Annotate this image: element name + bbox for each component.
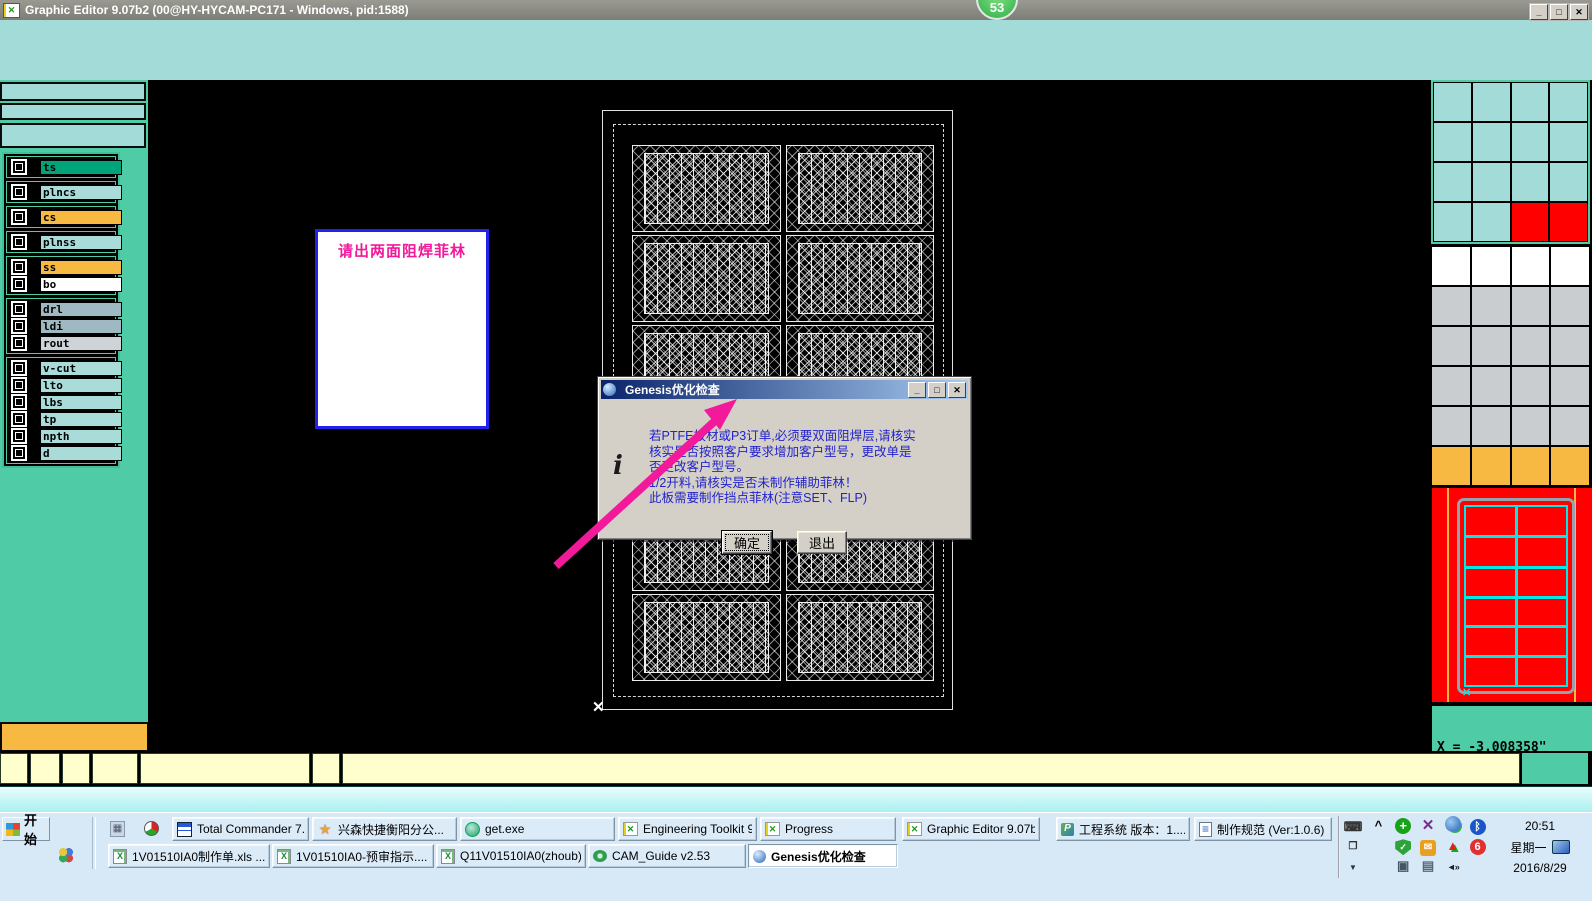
tray-side-controls (1340, 816, 1366, 878)
note-text: 请出两面阻焊菲林 (338, 243, 466, 260)
panel-preview: ✕ (1432, 488, 1592, 702)
mailc-icon[interactable] (1420, 840, 1436, 856)
layer-label[interactable]: ts (40, 160, 122, 175)
grid-cell[interactable] (1512, 123, 1549, 161)
grid-cell[interactable] (1472, 327, 1510, 365)
status-segment (342, 753, 1520, 784)
layer-label[interactable]: plnss (40, 235, 122, 250)
grid-cell[interactable] (1473, 163, 1510, 201)
layer-row-lto[interactable]: lto (8, 377, 114, 393)
status-segment (0, 753, 28, 784)
grid-cell[interactable] (1432, 247, 1470, 285)
layer-row-plnss[interactable]: plnss (8, 234, 114, 250)
note-box: 请出两面阻焊菲林 (315, 229, 489, 429)
layer-row-plncs[interactable]: plncs (8, 184, 114, 200)
six-icon[interactable] (1470, 839, 1486, 855)
taskbar-button-label: 制作规范 (Ver:1.0.6) (1217, 821, 1324, 838)
taskbar-button[interactable]: get.exe (460, 817, 615, 841)
clock-day: 星期一 (1510, 839, 1546, 856)
grid-cell[interactable] (1551, 287, 1589, 325)
title-bar: ✕ Graphic Editor 9.07b2 (00@HY-HYCAM-PC1… (0, 0, 1592, 20)
panel-block (786, 594, 935, 681)
dialog-title-bar[interactable]: Genesis优化检查 _ □ ✕ (601, 380, 968, 399)
grid-cell[interactable] (1512, 447, 1550, 485)
layer-group: cs (6, 206, 116, 228)
panel-block (786, 145, 935, 232)
dialog-body: i 若PTFE板材或P3订单,必须要双面阻焊层,请核实核实是否按照客户要求增加客… (601, 399, 968, 536)
genesis-check-dialog: Genesis优化检查 _ □ ✕ i 若PTFE板材或P3订单,必须要双面阻焊… (597, 376, 972, 540)
grid-cell[interactable] (1551, 447, 1589, 485)
grid-cell[interactable] (1434, 203, 1471, 241)
monitor-icon[interactable] (1552, 840, 1570, 854)
grid-cell[interactable] (1512, 327, 1550, 365)
layer-row-rout[interactable]: rout (8, 335, 114, 351)
dialog-maximize-button[interactable]: □ (928, 382, 946, 398)
dialog-message-line: 若PTFE板材或P3订单,必须要双面阻焊层,请核实 (649, 429, 964, 445)
tray-icons (1366, 816, 1490, 878)
taskbar-button-label: Genesis优化检查 (771, 848, 866, 865)
xpurple-icon[interactable] (1420, 818, 1436, 834)
taskbar-button-label: CAM_Guide v2.53 (612, 849, 710, 863)
layer-label[interactable]: bo (40, 277, 122, 292)
layer-row-tp[interactable]: tp (8, 411, 114, 427)
grid-cell[interactable] (1434, 123, 1471, 161)
start-label: 开始 (24, 810, 46, 848)
taskbar-button[interactable]: 工程系统 版本：1.... (1056, 817, 1190, 841)
panel-block (632, 235, 781, 322)
grid-cell[interactable] (1512, 83, 1549, 121)
taskbar-button[interactable]: 制作规范 (Ver:1.0.6) (1194, 817, 1332, 841)
layer-color-grid-top (1431, 80, 1590, 244)
color-app-icon[interactable] (144, 821, 159, 836)
layer-checkbox[interactable] (11, 394, 27, 410)
info-icon: i (613, 451, 623, 481)
grid-cell[interactable] (1512, 287, 1550, 325)
status-segment (62, 753, 90, 784)
layer-label[interactable]: cs (40, 210, 122, 225)
layer-checkbox[interactable] (11, 318, 27, 334)
layer-group: drlldirout (6, 298, 116, 354)
grid-cell[interactable] (1512, 247, 1550, 285)
tray-clock: 20:51 星期一 2016/8/29 (1490, 816, 1590, 878)
dialog-minimize-button[interactable]: _ (908, 382, 926, 398)
grid-cell[interactable] (1512, 163, 1549, 201)
grid-cell[interactable] (1473, 203, 1510, 241)
grid-cell[interactable] (1551, 367, 1589, 405)
gx-icon (765, 822, 780, 836)
layer-row-ss[interactable]: ss (8, 259, 114, 275)
preview-guide-line (1447, 488, 1449, 702)
status-segment (140, 753, 310, 784)
calculator-icon[interactable] (110, 821, 125, 837)
grid-cell[interactable] (1512, 407, 1550, 445)
taskbar-button-label: Engineering Toolkit 9.... (643, 822, 752, 836)
quicklaunch-divider (92, 817, 96, 869)
layer-checkbox[interactable] (11, 360, 27, 376)
excel-icon (113, 849, 127, 864)
taskbar-button[interactable]: 兴森快捷衡阳分公... (312, 817, 457, 841)
taskbar-button[interactable]: Progress (760, 817, 896, 841)
layer-label[interactable]: tp (40, 412, 122, 427)
balls-icon[interactable] (58, 847, 74, 863)
layer-group: v-cutltolbstpnpthd (6, 357, 116, 464)
layer-label[interactable]: rout (40, 336, 122, 351)
grid-cell[interactable] (1472, 407, 1510, 445)
taskbar-button[interactable]: 1V01510IA0制作单.xls ... (108, 844, 270, 868)
redarrow-icon[interactable] (1445, 838, 1461, 854)
speaker-icon[interactable] (1445, 859, 1461, 875)
ok-button[interactable]: 确定 (722, 531, 772, 554)
layer-checkbox[interactable] (11, 428, 27, 444)
taskbar-button-label: Graphic Editor 9.07b2... (927, 822, 1035, 836)
layer-group: plnss (6, 231, 116, 253)
layer-row-drl[interactable]: drl (8, 301, 114, 317)
top-band (0, 20, 1592, 80)
clock-date: 2016/8/29 (1494, 861, 1586, 875)
globe2-icon (753, 850, 766, 863)
preview-origin-icon: ✕ (1462, 686, 1471, 699)
grid-cell[interactable] (1472, 287, 1510, 325)
clipboard-icon[interactable] (1420, 858, 1436, 874)
grid-cell[interactable] (1550, 83, 1587, 121)
layer-group: plncs (6, 181, 116, 203)
clock-time: 20:51 (1494, 819, 1586, 833)
bottom-strip (0, 786, 1592, 813)
grid-cell[interactable] (1432, 447, 1470, 485)
chevron-icon[interactable] (1370, 818, 1386, 834)
shield-icon[interactable] (1395, 839, 1411, 855)
layer-row-d[interactable]: d (8, 445, 114, 461)
layer-row-cs[interactable]: cs (8, 209, 114, 225)
floppy-icon (177, 822, 192, 837)
grid-cell[interactable] (1551, 327, 1589, 365)
status-segment (92, 753, 138, 784)
grid-cell[interactable] (1512, 203, 1549, 241)
exit-button[interactable]: 退出 (797, 531, 847, 554)
taskbar-button-label: Total Commander 7.0 ... (197, 822, 304, 836)
restore-icon[interactable] (1345, 839, 1361, 855)
layer-row-bo[interactable]: bo (8, 276, 114, 292)
coordinate-readout: X = -3.008358" Y = 13.812537" (1432, 706, 1592, 751)
layer-checkbox[interactable] (11, 159, 27, 175)
layer-checkbox[interactable] (11, 276, 27, 292)
layer-label[interactable]: ss (40, 260, 122, 275)
layer-checkbox[interactable] (11, 411, 27, 427)
layer-group: ssbo (6, 256, 116, 295)
layer-label[interactable]: lbs (40, 395, 122, 410)
doc-icon (1199, 822, 1212, 837)
layer-row-lbs[interactable]: lbs (8, 394, 114, 410)
minimize-button[interactable]: _ (1530, 4, 1548, 20)
panel-block (632, 594, 781, 681)
taskbar: 开始 Total Commander 7.0 ...兴森快捷衡阳分公...get… (0, 812, 1592, 901)
dialog-message-line: 否更改客户型号。 (649, 460, 964, 476)
layer-group: ts (6, 156, 116, 178)
layer-checkbox[interactable] (11, 377, 27, 393)
taskbar-button-label: 工程系统 版本：1.... (1079, 821, 1185, 838)
layer-list: tsplncscsplnssssbodrlldiroutv-cutltolbst… (2, 152, 120, 468)
globe-icon (603, 383, 616, 396)
grid-cell[interactable] (1432, 367, 1470, 405)
cam-icon (593, 850, 607, 862)
status-segment (30, 753, 60, 784)
layer-label[interactable]: npth (40, 429, 122, 444)
grid-cell[interactable] (1551, 407, 1589, 445)
status-bar (0, 751, 1592, 786)
p-icon (1061, 823, 1074, 836)
grid-cell[interactable] (1472, 367, 1510, 405)
grid-cell[interactable] (1550, 163, 1587, 201)
layer-label[interactable]: v-cut (40, 361, 122, 376)
layer-row-npth[interactable]: npth (8, 428, 114, 444)
layer-row-ldi[interactable]: ldi (8, 318, 114, 334)
taskbar-button[interactable]: Total Commander 7.0 ... (172, 817, 309, 841)
preview-board-outline: ✕ (1457, 498, 1575, 694)
layer-row-v-cut[interactable]: v-cut (8, 360, 114, 376)
taskbar-button[interactable]: Graphic Editor 9.07b2... (902, 817, 1040, 841)
taskbar-button-label: 1V01510IA0制作单.xls ... (132, 848, 265, 865)
close-button[interactable]: ✕ (1570, 4, 1588, 20)
layer-checkbox[interactable] (11, 184, 27, 200)
left-panel: tsplncscsplnssssbodrlldiroutv-cutltolbst… (0, 80, 148, 751)
left-toolbar-slot (0, 82, 146, 101)
window-title: Graphic Editor 9.07b2 (00@HY-HYCAM-PC171… (25, 3, 409, 17)
window-controls: _ □ ✕ (1529, 3, 1589, 21)
grid-cell[interactable] (1473, 83, 1510, 121)
grid-cell[interactable] (1472, 447, 1510, 485)
grid-cell[interactable] (1434, 163, 1471, 201)
grid-cell[interactable] (1551, 247, 1589, 285)
left-toolbar-slot (0, 123, 146, 148)
left-orange-bar (0, 722, 149, 752)
layer-row-ts[interactable]: ts (8, 159, 114, 175)
dialog-window-controls: _ □ ✕ (908, 382, 966, 398)
system-tray: 20:51 星期一 2016/8/29 (1338, 816, 1590, 878)
layer-label[interactable]: plncs (40, 185, 122, 200)
layer-label[interactable]: drl (40, 302, 122, 317)
dialog-message: 若PTFE板材或P3订单,必须要双面阻焊层,请核实核实是否按照客户要求增加客户型… (649, 429, 964, 507)
taskbar-button-label: 兴森快捷衡阳分公... (338, 821, 444, 838)
left-toolbar-slot (0, 103, 146, 120)
taskbar-button-label: get.exe (485, 822, 524, 836)
grid-cell[interactable] (1550, 203, 1587, 241)
layer-checkbox[interactable] (11, 259, 27, 275)
screen: { "window": { "title": "Graphic Editor 9… (0, 0, 1592, 900)
right-panel: ✕ X = -3.008358" Y = 13.812537" (1412, 80, 1592, 751)
excel-icon (441, 849, 455, 864)
taskbar-button-label: Progress (785, 822, 833, 836)
grid-cell[interactable] (1473, 123, 1510, 161)
status-segment (312, 753, 340, 784)
taskbar-button[interactable]: 1V01510IA0-预审指示.... (272, 844, 434, 868)
taskbar-button[interactable]: Engineering Toolkit 9.... (618, 817, 757, 841)
origin-marker-icon: ✕ (592, 698, 603, 716)
layer-label[interactable]: lto (40, 378, 122, 393)
netplug-icon[interactable] (1395, 858, 1411, 874)
grid-cell[interactable] (1432, 287, 1470, 325)
taskbar-button-label: 1V01510IA0-预审指示.... (296, 848, 427, 865)
gx-icon (907, 822, 922, 836)
preview-grid (1464, 505, 1568, 687)
grid-cell[interactable] (1472, 247, 1510, 285)
blueglobe-icon[interactable] (1445, 816, 1461, 832)
status-segment (1522, 753, 1588, 784)
layer-color-grid-bottom (1431, 246, 1590, 486)
taskbar-button[interactable]: Genesis优化检查 (748, 844, 898, 868)
panel-block (786, 235, 935, 322)
layer-checkbox[interactable] (11, 301, 27, 317)
bluetooth-icon[interactable] (1470, 819, 1486, 835)
start-button[interactable]: 开始 (2, 817, 50, 841)
maximize-button[interactable]: □ (1550, 4, 1568, 20)
chevron-down-icon[interactable] (1345, 860, 1361, 876)
app-icon: ✕ (3, 3, 20, 18)
keyboard-icon[interactable] (1345, 818, 1361, 834)
dialog-close-button[interactable]: ✕ (948, 382, 966, 398)
avplus-icon[interactable] (1395, 818, 1411, 834)
globe-icon (465, 822, 480, 837)
dialog-title: Genesis优化检查 (625, 381, 720, 398)
taskbar-button[interactable]: Q11V01510IA0(zhoub).x... (436, 844, 586, 868)
taskbar-button-label: Q11V01510IA0(zhoub).x... (460, 849, 581, 863)
windows-flag-icon (6, 823, 20, 836)
grid-cell[interactable] (1432, 407, 1470, 445)
gx-icon (623, 822, 638, 836)
layer-checkbox[interactable] (11, 335, 27, 351)
layer-checkbox[interactable] (11, 209, 27, 225)
star-icon (317, 822, 333, 836)
panel-block (632, 145, 781, 232)
grid-cell[interactable] (1512, 367, 1550, 405)
grid-cell[interactable] (1432, 327, 1470, 365)
layer-label[interactable]: ldi (40, 319, 122, 334)
layer-checkbox[interactable] (11, 234, 27, 250)
grid-cell[interactable] (1434, 83, 1471, 121)
dialog-message-line: 此板需要制作挡点菲林(注意SET、FLP) (649, 491, 964, 507)
dialog-message-line: 1/2开料,请核实是否未制作辅助菲林！ (649, 476, 964, 492)
layer-label[interactable]: d (40, 446, 122, 461)
dialog-message-line: 核实是否按照客户要求增加客户型号，更改单是 (649, 445, 964, 461)
grid-cell[interactable] (1550, 123, 1587, 161)
layer-checkbox[interactable] (11, 445, 27, 461)
taskbar-button[interactable]: CAM_Guide v2.53 (588, 844, 746, 868)
excel-icon (277, 849, 291, 864)
